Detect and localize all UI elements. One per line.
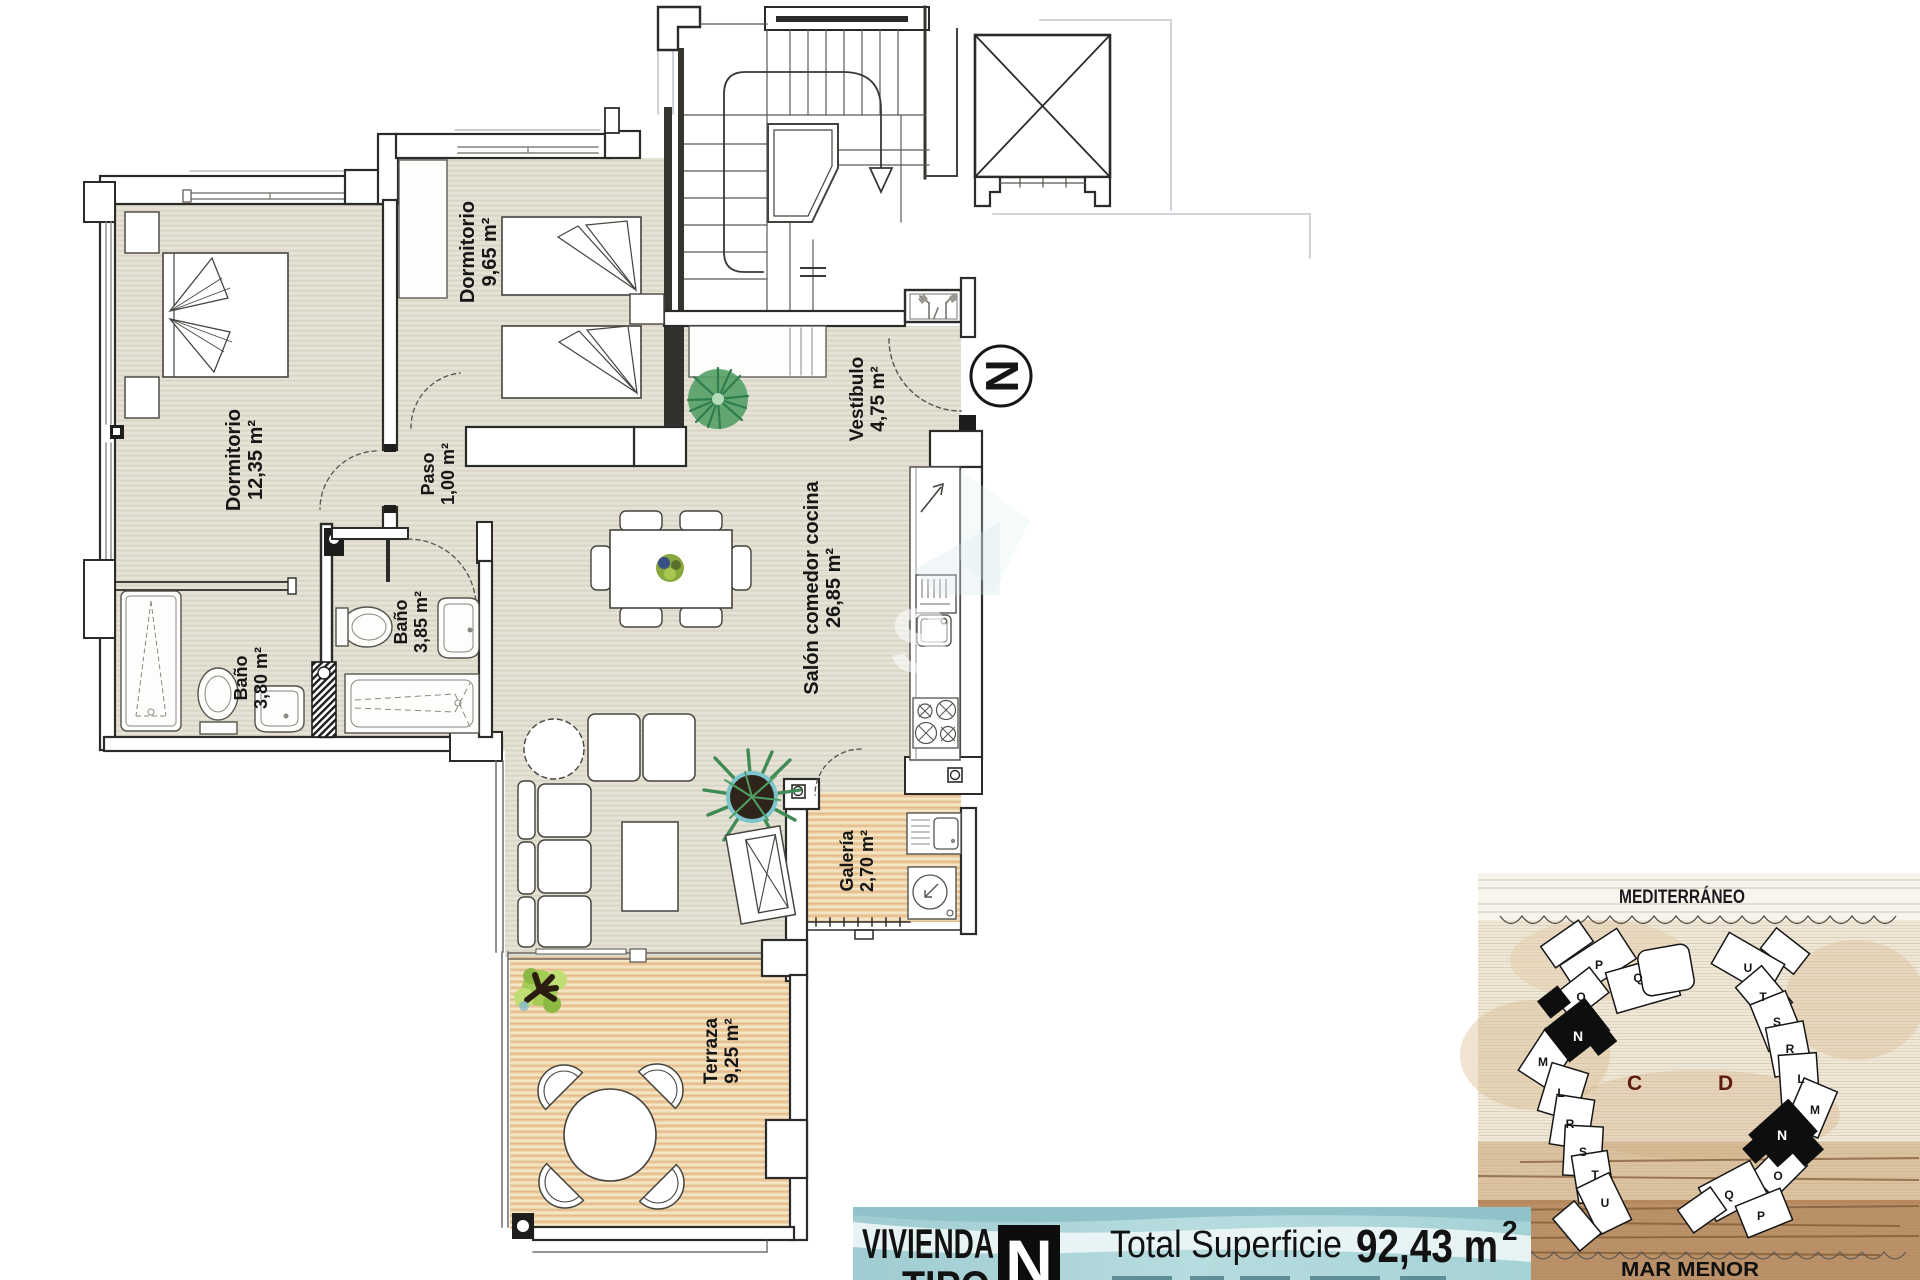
svg-text:M: M [1538, 1055, 1548, 1069]
svg-text:M: M [1810, 1103, 1820, 1117]
svg-text:Baño3,80 m²: Baño3,80 m² [231, 647, 271, 709]
svg-text:VIVIENDA: VIVIENDA [862, 1220, 994, 1267]
svg-text:U: U [1601, 1196, 1610, 1210]
svg-text:S: S [1773, 1015, 1781, 1029]
svg-text:D: D [1718, 1072, 1733, 1095]
svg-text:Baño3,85 m²: Baño3,85 m² [391, 591, 431, 653]
svg-text:R: R [1786, 1042, 1795, 1056]
svg-text:Vestíbulo4,75 m²: Vestíbulo4,75 m² [847, 357, 889, 441]
svg-text:2: 2 [1502, 1215, 1518, 1246]
svg-text:U: U [1744, 961, 1753, 975]
svg-text:O: O [1576, 990, 1585, 1004]
svg-text:TIPO: TIPO [902, 1262, 990, 1280]
svg-text:Dormitorio12,35 m²: Dormitorio12,35 m² [223, 409, 267, 511]
svg-text:R: R [1566, 1117, 1575, 1131]
svg-text:Galería2,70 m²: Galería2,70 m² [837, 829, 877, 892]
svg-text:C: C [1627, 1072, 1642, 1095]
svg-text:Q: Q [1724, 1188, 1733, 1202]
svg-text:T: T [1591, 1168, 1599, 1182]
svg-text:N: N [1573, 1028, 1583, 1044]
svg-text:T: T [1759, 990, 1767, 1004]
svg-text:N: N [1005, 1226, 1053, 1280]
svg-text:Total Superficie: Total Superficie [1110, 1224, 1342, 1266]
svg-text:92,43 m: 92,43 m [1356, 1220, 1498, 1272]
svg-text:N: N [976, 359, 1028, 392]
svg-text:N: N [1777, 1127, 1787, 1143]
svg-text:P: P [1757, 1209, 1765, 1223]
svg-text:S: S [1579, 1145, 1587, 1159]
svg-text:L: L [1557, 1086, 1564, 1100]
svg-text:Q: Q [1633, 971, 1642, 985]
svg-text:L: L [1797, 1072, 1804, 1086]
svg-text:S: S [889, 590, 950, 692]
svg-text:O: O [1773, 1169, 1782, 1183]
svg-text:Terraza9,25 m²: Terraza9,25 m² [701, 1017, 743, 1084]
svg-text:P: P [1595, 958, 1603, 972]
svg-text:MEDITERRÁNEO: MEDITERRÁNEO [1619, 886, 1745, 908]
svg-text:MAR MENOR: MAR MENOR [1621, 1259, 1760, 1280]
